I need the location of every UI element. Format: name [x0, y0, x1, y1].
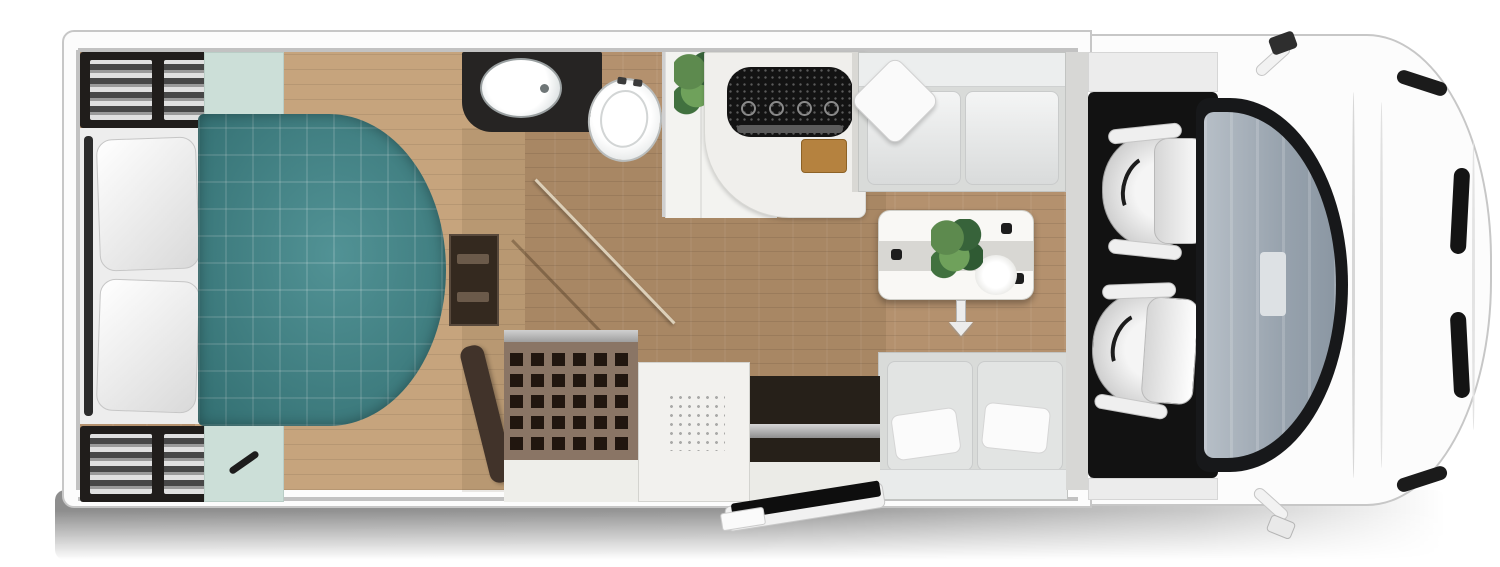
- mirror-head: [1266, 514, 1297, 540]
- dining-table: [878, 210, 1034, 300]
- entry-wall-band: [504, 460, 638, 502]
- headboard: [84, 136, 93, 416]
- burner-ring: [769, 101, 784, 116]
- armrest: [1102, 282, 1176, 300]
- mirror-head: [1268, 30, 1299, 56]
- wing-mirror-right: [1228, 460, 1298, 546]
- pedestal-foot: [949, 322, 973, 336]
- mint-side-panel-top: [204, 52, 284, 120]
- bumper-seam-line: [1472, 140, 1475, 430]
- bench-backrest: [879, 469, 1067, 499]
- cabinet-slat: [457, 254, 489, 264]
- folded-clothes-shelf: [90, 60, 152, 120]
- grab-handle-icon: [228, 450, 260, 475]
- hood-seam-line: [1352, 92, 1355, 478]
- faucet-icon: [540, 84, 549, 93]
- pillow-right: [96, 278, 201, 413]
- cab-partition-strip: [1066, 52, 1088, 490]
- cooktop-rim: [737, 125, 843, 133]
- cabinet-metal-top: [504, 330, 638, 342]
- grille-cabinet: [504, 330, 638, 460]
- island-bed: [198, 114, 446, 426]
- rearview-mirror: [1260, 252, 1286, 316]
- toilet-lid: [596, 87, 652, 151]
- dinette-bench-front: [878, 352, 1068, 500]
- toilet-hinge: [633, 79, 643, 87]
- entry-doorway: [750, 376, 880, 462]
- table-pedestal: [946, 300, 976, 340]
- burner-ring: [797, 101, 812, 116]
- folded-clothes-shelf: [90, 434, 152, 494]
- grille-grid: [510, 348, 632, 450]
- door-sill: [750, 424, 880, 438]
- cab-dash-trim-bottom: [1088, 478, 1218, 500]
- passenger-swivel-seat: [1082, 280, 1209, 420]
- exterior-electric-step: [715, 468, 895, 560]
- seat-pillow: [890, 407, 962, 462]
- cup: [1001, 223, 1012, 234]
- cabinet-slat: [457, 292, 489, 302]
- toilet-hinge: [617, 77, 627, 85]
- cutting-board: [801, 139, 847, 173]
- burner-ring: [824, 101, 839, 116]
- washbasin: [480, 58, 562, 118]
- mint-side-panel-bottom: [204, 424, 284, 502]
- seat-cushion: [965, 91, 1059, 185]
- wing-mirror-left: [1226, 28, 1296, 114]
- seat-pillow: [981, 402, 1051, 455]
- foot-of-bed-cabinet: [449, 234, 499, 326]
- pedestal-stem: [956, 300, 966, 322]
- table-plant: [931, 219, 983, 281]
- bed-head-area: [80, 128, 204, 424]
- pillow-left: [96, 136, 201, 271]
- shower-drain-pattern: [667, 393, 725, 451]
- burner-ring: [741, 101, 756, 116]
- cup: [891, 249, 902, 260]
- cab-dash-trim-top: [1088, 52, 1218, 92]
- dinette-bench-rear: [858, 52, 1066, 192]
- cooktop-sink-combo: [727, 67, 853, 137]
- hood-seam-line: [1380, 102, 1383, 468]
- kitchen-counter: [704, 52, 866, 218]
- motorhome-floorplan: [0, 0, 1500, 567]
